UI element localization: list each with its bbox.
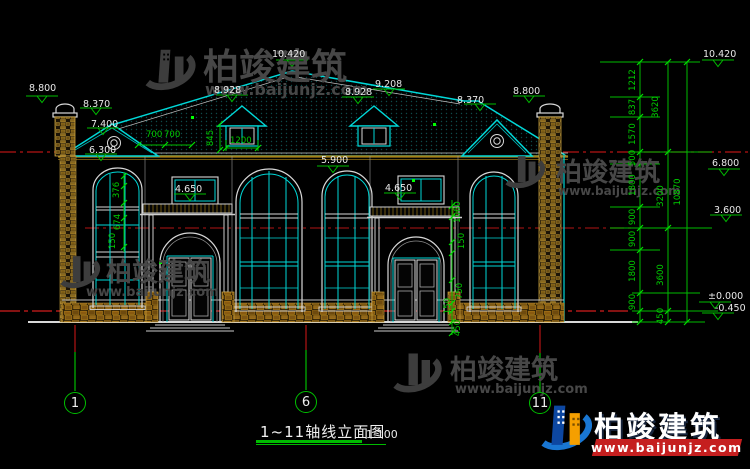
dim-label: 1060 xyxy=(454,201,463,223)
dim-label: 500 xyxy=(629,150,638,166)
dim-label: 3600 xyxy=(657,264,666,286)
axis-bubble-1: 1 xyxy=(64,392,86,414)
dim-label: 700 xyxy=(146,131,162,140)
dim-label: 900 xyxy=(629,294,638,310)
dim-label: 900 xyxy=(629,231,638,247)
dim-label: 1800 xyxy=(629,260,638,282)
dim-label: 845 xyxy=(207,130,216,146)
dim-label: 450 xyxy=(454,320,463,336)
dim-label: 1570 xyxy=(629,123,638,145)
elevation-label: -0.450 xyxy=(715,304,746,314)
dim-label: 700 xyxy=(164,131,180,140)
dim-label: 674 xyxy=(114,214,123,230)
watermark-logo-icon xyxy=(500,150,548,196)
axis-bubble-6: 6 xyxy=(295,391,317,413)
elevation-label: 4.650 xyxy=(385,184,412,194)
elevation-label: 7.400 xyxy=(91,120,118,130)
chimney-left xyxy=(53,104,77,156)
dim-label: 837 xyxy=(629,99,638,115)
window-big-1 xyxy=(233,169,305,312)
watermark-url: www.baijunjz.com xyxy=(455,382,588,397)
elevation-label: 3.600 xyxy=(714,206,741,216)
title-underline-thin xyxy=(256,444,386,445)
site-logo-url: www.baijunjz.com xyxy=(591,440,743,455)
dim-label: 150 xyxy=(444,298,453,314)
drawing-scale: 1:100 xyxy=(366,428,398,441)
elevation-label: 10.420 xyxy=(703,50,736,60)
dim-label: 376 xyxy=(113,182,122,198)
elevation-label: 8.800 xyxy=(513,87,540,97)
dim-label: 10870 xyxy=(674,178,683,205)
elevation-label: 6.800 xyxy=(712,159,739,169)
dim-label: 1200 xyxy=(230,137,252,146)
elevation-label: 9.208 xyxy=(375,80,402,90)
watermark-logo-icon xyxy=(138,42,200,100)
site-logo-banner: www.baijunjz.com xyxy=(592,439,742,456)
dim-label: 150 xyxy=(458,233,467,249)
elevation-label: ±0.000 xyxy=(708,292,743,302)
cad-viewport: 柏竣建筑 www.baijunjz.com 柏竣建筑 www.baijunjz.… xyxy=(0,0,750,469)
dim-label: 150 xyxy=(109,233,118,249)
chimney-right xyxy=(537,104,563,322)
elevation-label: 10.420 xyxy=(272,50,305,60)
elevation-label: 8.370 xyxy=(83,100,110,110)
dim-label: 1212 xyxy=(629,69,638,91)
elevation-label: 8.800 xyxy=(29,84,56,94)
dim-label: 3620 xyxy=(652,96,661,118)
dim-label: 900 xyxy=(629,209,638,225)
dim-label: 1800 xyxy=(629,174,638,196)
watermark-logo-icon xyxy=(388,346,444,402)
dim-label: 450 xyxy=(657,308,666,324)
elevation-label: 8.928 xyxy=(214,86,241,96)
elevation-label: 4.650 xyxy=(175,185,202,195)
dim-label: 750 xyxy=(456,283,465,299)
site-logo-icon xyxy=(536,397,592,461)
elevation-label: 8.370 xyxy=(457,96,484,106)
elevation-label: 8.928 xyxy=(345,88,372,98)
dim-label: 3200 xyxy=(657,185,666,207)
title-underline xyxy=(256,440,362,443)
window-big-2 xyxy=(319,171,375,312)
watermark-brand: 柏竣建筑 xyxy=(106,252,210,289)
elevation-label: 5.900 xyxy=(321,156,348,166)
watermark-url: www.baijunjz.com xyxy=(86,285,219,300)
elevation-label: 6.300 xyxy=(89,146,116,156)
